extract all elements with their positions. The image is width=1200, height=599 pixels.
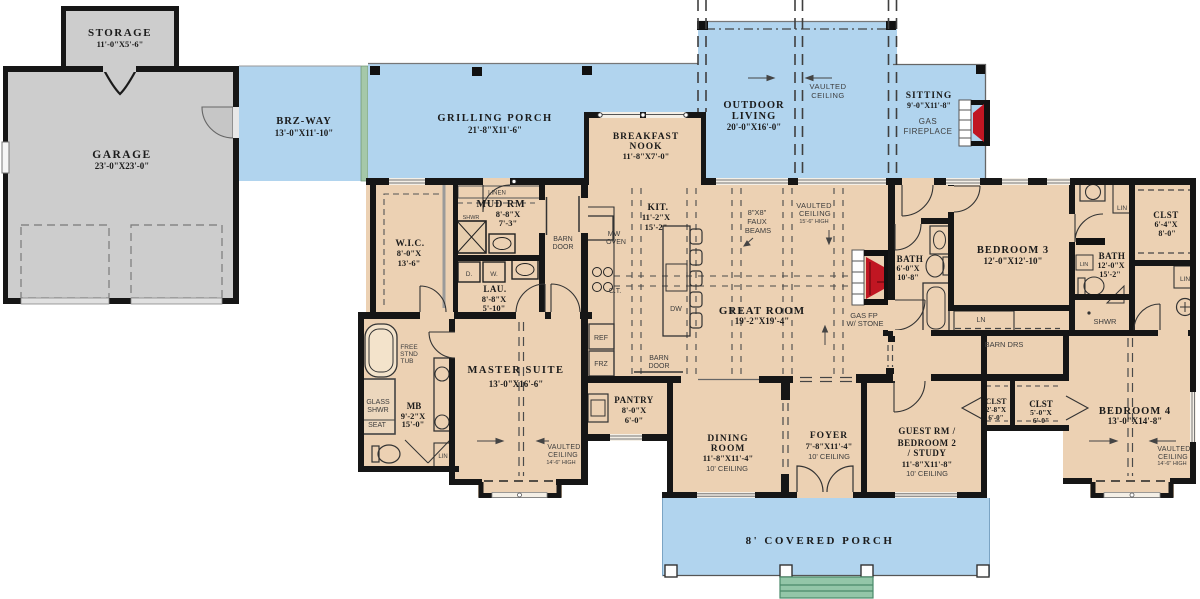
svg-text:BATH: BATH	[1099, 251, 1126, 261]
svg-text:OUTDOOR: OUTDOOR	[723, 100, 784, 111]
svg-text:15'-0": 15'-0"	[402, 419, 425, 429]
svg-text:W/ STONE: W/ STONE	[847, 319, 884, 328]
svg-text:DINING: DINING	[707, 434, 748, 444]
svg-text:21'-8"X11'-6": 21'-8"X11'-6"	[468, 125, 522, 135]
svg-text:VAULTED: VAULTED	[1157, 446, 1190, 453]
svg-text:7'-8"X11'-4": 7'-8"X11'-4"	[806, 441, 853, 451]
svg-text:6'-0": 6'-0"	[1033, 416, 1049, 425]
svg-text:8'-0"X: 8'-0"X	[622, 405, 647, 415]
svg-text:CLST: CLST	[1153, 210, 1179, 220]
svg-text:7'-3": 7'-3"	[499, 218, 517, 228]
svg-text:FOYER: FOYER	[810, 431, 848, 441]
svg-text:15'-2": 15'-2"	[645, 222, 668, 232]
svg-text:LIN: LIN	[1117, 205, 1127, 212]
svg-text:20'-0"X16'-0": 20'-0"X16'-0"	[727, 122, 782, 132]
svg-text:13'-0"X14'-8": 13'-0"X14'-8"	[1108, 416, 1163, 426]
svg-text:VAULTED: VAULTED	[810, 82, 847, 91]
svg-text:DOOR: DOOR	[553, 244, 574, 251]
svg-text:C.T.: C.T.	[609, 288, 622, 295]
svg-text:10' CEILING: 10' CEILING	[906, 469, 948, 478]
svg-text:SITTING: SITTING	[906, 91, 953, 101]
svg-text:5'-10": 5'-10"	[483, 303, 506, 313]
svg-text:8'-0"X: 8'-0"X	[397, 248, 422, 258]
svg-text:SEAT: SEAT	[368, 422, 386, 429]
svg-text:6'-0": 6'-0"	[988, 414, 1003, 422]
svg-text:10' CEILING: 10' CEILING	[706, 464, 748, 473]
svg-text:13'-6": 13'-6"	[398, 258, 421, 268]
svg-text:D.: D.	[466, 271, 473, 278]
svg-text:6'-0"X: 6'-0"X	[896, 264, 919, 273]
svg-text:STND: STND	[400, 351, 418, 358]
svg-text:15'-6" HIGH: 15'-6" HIGH	[799, 219, 828, 225]
svg-text:VAULTED: VAULTED	[547, 444, 580, 451]
svg-text:BATH: BATH	[897, 254, 924, 264]
svg-text:CLST: CLST	[986, 397, 1008, 406]
svg-text:LIVING: LIVING	[732, 111, 777, 122]
svg-text:SHWR: SHWR	[367, 407, 388, 414]
svg-text:15'-2": 15'-2"	[1099, 270, 1120, 279]
svg-text:FAUX: FAUX	[747, 217, 767, 226]
svg-text:CEILING: CEILING	[1158, 454, 1188, 461]
svg-text:LIN: LIN	[1080, 262, 1089, 268]
svg-text:8'-0": 8'-0"	[1158, 229, 1175, 238]
svg-text:11'-8"X11'-4": 11'-8"X11'-4"	[703, 453, 754, 463]
svg-text:LIN: LIN	[438, 454, 447, 460]
svg-text:10'-8": 10'-8"	[897, 273, 918, 282]
svg-text:MW: MW	[608, 231, 621, 238]
svg-text:13'-0"X16'-6": 13'-0"X16'-6"	[489, 379, 544, 389]
svg-text:6'-4"X: 6'-4"X	[1154, 220, 1177, 229]
svg-text:STORAGE: STORAGE	[88, 27, 152, 39]
svg-text:BEAMS: BEAMS	[745, 226, 771, 235]
svg-text:LINEN: LINEN	[488, 191, 506, 197]
svg-text:8"X8": 8"X8"	[748, 208, 767, 217]
svg-text:19'-2"X19'-4": 19'-2"X19'-4"	[735, 316, 790, 326]
svg-text:FIREPLACE: FIREPLACE	[904, 127, 953, 136]
svg-text:BEDROOM 2: BEDROOM 2	[898, 438, 957, 448]
svg-text:GUEST RM /: GUEST RM /	[898, 426, 955, 436]
svg-text:CEILING: CEILING	[811, 91, 845, 100]
svg-text:6'-0": 6'-0"	[625, 415, 643, 425]
svg-text:TUB: TUB	[401, 358, 414, 365]
svg-text:2'-8"X: 2'-8"X	[986, 406, 1006, 414]
svg-text:23'-0"X23'-0": 23'-0"X23'-0"	[95, 161, 150, 171]
svg-text:BARN DRS: BARN DRS	[985, 340, 1024, 349]
svg-text:11'-8"X7'-0": 11'-8"X7'-0"	[623, 151, 670, 161]
svg-text:GAS: GAS	[919, 117, 937, 126]
svg-text:FREE: FREE	[400, 344, 418, 351]
svg-text:14'-6" HIGH: 14'-6" HIGH	[546, 460, 575, 466]
svg-text:8' COVERED PORCH: 8' COVERED PORCH	[746, 535, 895, 547]
svg-text:FRZ: FRZ	[594, 361, 608, 368]
svg-text:DW: DW	[670, 306, 682, 313]
svg-text:BRZ-WAY: BRZ-WAY	[276, 116, 332, 127]
svg-text:MB: MB	[407, 401, 422, 411]
svg-text:PANTRY: PANTRY	[614, 395, 654, 405]
svg-text:12'-0"X: 12'-0"X	[1097, 261, 1124, 270]
svg-text:SHWR: SHWR	[1094, 317, 1117, 326]
svg-text:LN: LN	[977, 317, 986, 324]
svg-text:BREAKFAST: BREAKFAST	[613, 132, 679, 142]
svg-text:11'-8"X11'-8": 11'-8"X11'-8"	[902, 459, 953, 469]
svg-text:12'-0"X12'-10": 12'-0"X12'-10"	[984, 256, 1043, 266]
svg-text:CEILING: CEILING	[548, 452, 578, 459]
svg-text:OVEN: OVEN	[606, 239, 626, 246]
svg-text:REF: REF	[594, 335, 608, 342]
svg-text:CEILING: CEILING	[799, 209, 831, 218]
svg-text:GLASS: GLASS	[366, 399, 390, 406]
svg-text:11'-2"X: 11'-2"X	[642, 212, 671, 222]
svg-text:W.: W.	[490, 271, 498, 278]
svg-text:LAU.: LAU.	[483, 284, 506, 294]
svg-text:10' CEILING: 10' CEILING	[808, 452, 850, 461]
svg-text:LIN: LIN	[1180, 276, 1190, 283]
svg-text:BARN: BARN	[553, 236, 572, 243]
svg-text:DOOR: DOOR	[649, 363, 670, 370]
svg-text:BARN: BARN	[649, 355, 668, 362]
svg-text:/ STUDY: / STUDY	[907, 448, 947, 458]
svg-text:13'-0"X11'-10": 13'-0"X11'-10"	[275, 128, 334, 138]
svg-text:SHWR: SHWR	[463, 215, 480, 221]
svg-text:11'-0"X5'-6": 11'-0"X5'-6"	[97, 39, 144, 49]
svg-text:14'-6" HIGH: 14'-6" HIGH	[1157, 461, 1186, 467]
svg-text:9'-0"X11'-8": 9'-0"X11'-8"	[907, 101, 951, 110]
svg-text:GARAGE: GARAGE	[92, 149, 151, 161]
svg-text:GRILLING PORCH: GRILLING PORCH	[437, 113, 552, 124]
svg-text:BEDROOM 3: BEDROOM 3	[977, 245, 1049, 256]
svg-text:MASTER SUITE: MASTER SUITE	[467, 365, 564, 376]
